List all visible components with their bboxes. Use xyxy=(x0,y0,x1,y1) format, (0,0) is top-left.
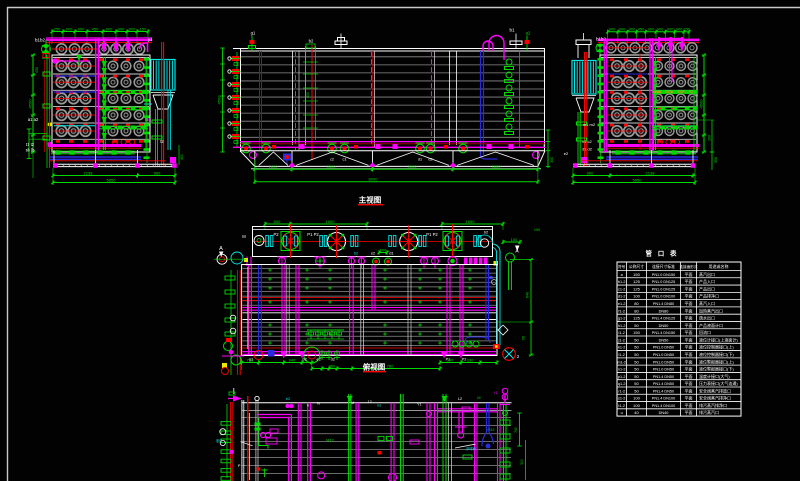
svg-text:330: 330 xyxy=(467,357,474,362)
svg-text:50: 50 xyxy=(634,323,639,328)
svg-text:g2: g2 xyxy=(526,31,531,36)
svg-text:80: 80 xyxy=(634,301,639,306)
svg-text:M12: M12 xyxy=(326,438,335,443)
svg-text:连接面形式: 连接面形式 xyxy=(680,264,698,269)
svg-text:平面: 平面 xyxy=(685,272,693,277)
svg-text:液位控制器接口(下): 液位控制器接口(下) xyxy=(699,351,734,357)
svg-text:d1-2: d1-2 xyxy=(618,295,626,299)
svg-text:Y1: Y1 xyxy=(417,403,422,407)
svg-text:m1-2: m1-2 xyxy=(617,360,626,364)
svg-text:960: 960 xyxy=(587,170,594,175)
svg-text:b2: b2 xyxy=(354,252,358,256)
svg-text:液位警报器接口(上): 液位警报器接口(上) xyxy=(699,358,734,364)
svg-text:液位计接口(上液面计): 液位计接口(上液面计) xyxy=(699,336,738,342)
svg-text:50: 50 xyxy=(634,388,639,393)
svg-text:DN40: DN40 xyxy=(659,411,669,415)
svg-text:740: 740 xyxy=(514,427,518,433)
svg-text:100: 100 xyxy=(380,247,387,252)
svg-text:u: u xyxy=(621,411,623,415)
svg-text:n1-2: n1-2 xyxy=(618,368,626,372)
svg-text:m1 m2: m1 m2 xyxy=(583,122,596,127)
svg-text:125: 125 xyxy=(633,286,640,291)
svg-text:PN1.4 DN50: PN1.4 DN50 xyxy=(653,382,674,386)
svg-text:3000: 3000 xyxy=(408,164,418,169)
svg-text:950: 950 xyxy=(714,157,718,163)
svg-text:g1: g1 xyxy=(251,31,256,36)
svg-text:俯视图: 俯视图 xyxy=(363,362,386,372)
svg-text:PN1.0 DN125: PN1.0 DN125 xyxy=(652,280,675,284)
svg-text:c2: c2 xyxy=(330,158,334,162)
svg-text:平面: 平面 xyxy=(685,301,693,306)
svg-text:68: 68 xyxy=(522,336,526,340)
svg-text:液位: 液位 xyxy=(216,438,223,443)
svg-text:U: U xyxy=(351,401,354,405)
svg-text:50: 50 xyxy=(634,374,639,379)
svg-text:900: 900 xyxy=(66,26,73,31)
svg-text:b2: b2 xyxy=(286,397,290,401)
svg-text:平面: 平面 xyxy=(685,359,693,364)
svg-text:b1: b1 xyxy=(509,28,515,33)
svg-text:压力表接口(大气连通): 压力表接口(大气连通) xyxy=(699,380,738,386)
svg-text:A: A xyxy=(219,246,223,252)
svg-text:150: 150 xyxy=(140,26,147,31)
svg-text:安全阀蒸汽排放口: 安全阀蒸汽排放口 xyxy=(699,387,731,393)
svg-text:1650: 1650 xyxy=(326,219,336,224)
svg-text:b2: b2 xyxy=(309,39,314,44)
svg-text:50: 50 xyxy=(634,337,639,342)
svg-text:2138: 2138 xyxy=(84,170,94,175)
svg-text:PN1.0 DN125: PN1.0 DN125 xyxy=(652,287,675,291)
svg-text:450: 450 xyxy=(92,26,99,31)
svg-text:d1: d1 xyxy=(389,251,394,256)
svg-text:M: M xyxy=(242,234,246,239)
svg-text:80: 80 xyxy=(634,308,639,313)
svg-text:p1-2: p1-2 xyxy=(618,375,626,379)
svg-text:平面: 平面 xyxy=(685,308,693,313)
svg-text:150: 150 xyxy=(683,27,690,32)
svg-text:b1-2: b1-2 xyxy=(618,280,626,284)
svg-text:4500: 4500 xyxy=(28,99,33,109)
svg-text:液位控制器接口(上): 液位控制器接口(上) xyxy=(699,344,734,350)
svg-text:P1 P2: P1 P2 xyxy=(426,232,438,237)
svg-text:8000: 8000 xyxy=(369,177,379,182)
svg-text:PN1.0 DN50: PN1.0 DN50 xyxy=(653,368,674,372)
svg-text:h: h xyxy=(307,404,309,408)
svg-text:q1-2: q1-2 xyxy=(618,382,626,386)
svg-text:f1-2: f1-2 xyxy=(618,309,625,313)
svg-text:f1: f1 xyxy=(494,391,497,395)
svg-text:l1-2: l1-2 xyxy=(619,353,625,357)
svg-text:排污蒸汽排净口: 排污蒸汽排净口 xyxy=(699,402,727,408)
svg-text:900: 900 xyxy=(106,26,113,31)
svg-text:960: 960 xyxy=(154,170,161,175)
svg-text:产品出口: 产品出口 xyxy=(699,285,715,291)
svg-text:平面: 平面 xyxy=(685,279,693,284)
svg-text:350: 350 xyxy=(329,363,336,368)
svg-text:y1: y1 xyxy=(148,37,153,42)
svg-text:50: 50 xyxy=(634,381,639,386)
svg-text:12: 12 xyxy=(367,400,371,404)
svg-text:75: 75 xyxy=(543,144,547,148)
svg-text:350: 350 xyxy=(550,157,554,163)
svg-text:d2: d2 xyxy=(331,357,336,362)
svg-text:PN1.4 DN100: PN1.4 DN100 xyxy=(652,397,675,401)
svg-text:40: 40 xyxy=(634,410,639,415)
svg-text:P: P xyxy=(238,464,241,468)
svg-text:640: 640 xyxy=(526,292,530,298)
svg-text:PN1.0 DN50: PN1.0 DN50 xyxy=(653,346,674,350)
svg-text:排污蒸汽口: 排污蒸汽口 xyxy=(699,409,719,415)
svg-text:平面: 平面 xyxy=(685,352,693,357)
svg-text:c1-2: c1-2 xyxy=(618,287,625,291)
svg-text:PN1.4 DN50: PN1.4 DN50 xyxy=(653,389,674,393)
svg-text:50: 50 xyxy=(634,367,639,372)
svg-text:125: 125 xyxy=(633,316,640,321)
svg-text:M: M xyxy=(477,396,480,400)
svg-text:900: 900 xyxy=(619,27,626,32)
svg-text:P2: P2 xyxy=(273,232,279,237)
svg-text:平面: 平面 xyxy=(685,367,693,372)
svg-text:3300: 3300 xyxy=(327,164,337,169)
svg-text:P1 P2: P1 P2 xyxy=(307,232,319,237)
svg-text:液位警报器接口(下): 液位警报器接口(下) xyxy=(699,366,734,372)
svg-text:PN1.4 DN150: PN1.4 DN150 xyxy=(652,331,675,335)
svg-text:2138: 2138 xyxy=(646,170,656,175)
svg-text:平面: 平面 xyxy=(685,294,693,299)
svg-text:4500: 4500 xyxy=(217,95,222,105)
svg-text:平面: 平面 xyxy=(685,381,693,386)
svg-text:PN1.4 DN100: PN1.4 DN100 xyxy=(652,404,675,408)
svg-text:450: 450 xyxy=(180,154,184,160)
svg-text:100: 100 xyxy=(633,294,640,299)
svg-text:e2: e2 xyxy=(564,151,569,156)
svg-text:平面: 平面 xyxy=(685,388,693,393)
svg-text:n1: n1 xyxy=(377,404,381,408)
svg-text:300: 300 xyxy=(447,357,454,362)
svg-text:50: 50 xyxy=(634,352,639,357)
svg-text:平面: 平面 xyxy=(685,410,693,415)
svg-text:PN1.4 DN50: PN1.4 DN50 xyxy=(653,375,674,379)
svg-text:L2: L2 xyxy=(458,397,462,401)
svg-text:100: 100 xyxy=(633,403,640,408)
svg-text:e2: e2 xyxy=(316,357,321,362)
svg-text:浮球阀: 浮球阀 xyxy=(466,446,477,451)
svg-text:t1 t2: t1 t2 xyxy=(26,142,35,147)
svg-text:200: 200 xyxy=(708,135,712,141)
svg-text:DN50: DN50 xyxy=(659,338,669,342)
svg-text:5850: 5850 xyxy=(107,177,117,182)
svg-text:940: 940 xyxy=(289,357,296,362)
svg-text:平面: 平面 xyxy=(685,286,693,291)
svg-text:平面: 平面 xyxy=(685,345,693,350)
svg-text:蒸汽入口: 蒸汽入口 xyxy=(699,300,715,306)
svg-text:125: 125 xyxy=(633,279,640,284)
svg-text:a1 a2: a1 a2 xyxy=(28,117,39,122)
svg-text:1650: 1650 xyxy=(492,164,502,169)
svg-text:DN80: DN80 xyxy=(659,309,669,313)
svg-text:100: 100 xyxy=(511,237,518,242)
svg-text:r1-2: r1-2 xyxy=(618,389,625,393)
svg-text:平面: 平面 xyxy=(685,316,693,321)
svg-text:d1 d2: d1 d2 xyxy=(582,147,593,152)
svg-text:PN1.4 DN80: PN1.4 DN80 xyxy=(653,302,674,306)
svg-text:用途或名称: 用途或名称 xyxy=(709,263,729,269)
svg-text:150: 150 xyxy=(633,272,640,277)
svg-text:平面: 平面 xyxy=(685,330,693,335)
svg-text:疏水出口: 疏水出口 xyxy=(699,315,715,321)
svg-text:安全阀蒸汽排净口: 安全阀蒸汽排净口 xyxy=(699,395,731,401)
svg-text:h1-2: h1-2 xyxy=(618,324,626,328)
svg-text:PN1.0 DN100: PN1.0 DN100 xyxy=(652,295,675,299)
svg-text:k1-2: k1-2 xyxy=(618,346,625,350)
svg-text:450: 450 xyxy=(35,67,39,73)
svg-text:符号: 符号 xyxy=(618,264,626,269)
svg-text:j1-2: j1-2 xyxy=(618,338,625,342)
svg-text:PN1.4 DN125: PN1.4 DN125 xyxy=(652,317,675,321)
svg-text:sb lb: sb lb xyxy=(26,148,36,153)
svg-text:产品入口: 产品入口 xyxy=(699,278,715,284)
svg-text:加热蒸汽出口: 加热蒸汽出口 xyxy=(699,307,723,313)
svg-text:900: 900 xyxy=(629,27,636,32)
svg-text:s1-2: s1-2 xyxy=(618,397,625,401)
svg-text:平面: 平面 xyxy=(685,337,693,342)
svg-text:900: 900 xyxy=(667,27,674,32)
svg-text:平面: 平面 xyxy=(685,323,693,328)
svg-text:b1b2: b1b2 xyxy=(35,38,46,43)
svg-text:N: N xyxy=(317,401,320,406)
svg-text:50: 50 xyxy=(634,345,639,350)
svg-text:5850: 5850 xyxy=(633,177,643,182)
svg-text:900: 900 xyxy=(129,26,136,31)
svg-text:800: 800 xyxy=(274,219,281,224)
svg-text:50: 50 xyxy=(634,359,639,364)
svg-text:710: 710 xyxy=(247,357,254,362)
svg-text:780: 780 xyxy=(387,363,394,368)
svg-text:g1-2: g1-2 xyxy=(618,317,626,321)
svg-text:800: 800 xyxy=(306,92,310,98)
svg-text:管 口 表: 管 口 表 xyxy=(645,249,678,258)
svg-text:主视图: 主视图 xyxy=(359,195,382,205)
svg-text:1650: 1650 xyxy=(269,164,279,169)
svg-text:4500: 4500 xyxy=(699,99,704,109)
svg-text:b2: b2 xyxy=(484,230,489,235)
svg-text:产品液面计口: 产品液面计口 xyxy=(699,322,723,328)
svg-text:e1-2: e1-2 xyxy=(618,302,626,306)
svg-text:t1-2: t1-2 xyxy=(618,404,625,408)
svg-text:d1: d1 xyxy=(418,158,422,162)
svg-text:蒸汽出口: 蒸汽出口 xyxy=(699,271,715,277)
svg-text:250: 250 xyxy=(54,26,61,31)
svg-text:900: 900 xyxy=(657,27,664,32)
svg-text:100: 100 xyxy=(633,396,640,401)
svg-text:c1 c2: c1 c2 xyxy=(582,139,592,144)
svg-text:i1-2: i1-2 xyxy=(619,331,625,335)
svg-text:平面: 平面 xyxy=(685,396,693,401)
svg-text:回流口: 回流口 xyxy=(699,329,711,335)
svg-text:温度计接口(大气): 温度计接口(大气) xyxy=(699,373,730,379)
svg-text:DN50: DN50 xyxy=(659,324,669,328)
svg-text:900: 900 xyxy=(118,26,125,31)
svg-text:450: 450 xyxy=(638,27,645,32)
svg-text:PN1.0 DN50: PN1.0 DN50 xyxy=(653,353,674,357)
svg-text:平面: 平面 xyxy=(685,374,693,379)
svg-text:公称尺寸: 公称尺寸 xyxy=(629,264,644,269)
svg-text:PN1.0 DN50: PN1.0 DN50 xyxy=(653,360,674,364)
svg-text:连接尺寸标准: 连接尺寸标准 xyxy=(652,264,675,269)
svg-text:900: 900 xyxy=(78,26,85,31)
svg-text:900: 900 xyxy=(676,27,683,32)
svg-text:1650: 1650 xyxy=(466,219,476,224)
svg-text:平面: 平面 xyxy=(685,403,693,408)
svg-text:150: 150 xyxy=(633,330,640,335)
svg-text:300: 300 xyxy=(520,459,524,465)
svg-text:PN1.0 DN150: PN1.0 DN150 xyxy=(652,273,675,277)
svg-text:900: 900 xyxy=(609,27,616,32)
svg-text:100: 100 xyxy=(534,228,540,232)
svg-text:c1: c1 xyxy=(342,158,346,162)
svg-text:产品排净口: 产品排净口 xyxy=(699,293,719,299)
svg-text:900: 900 xyxy=(648,27,655,32)
